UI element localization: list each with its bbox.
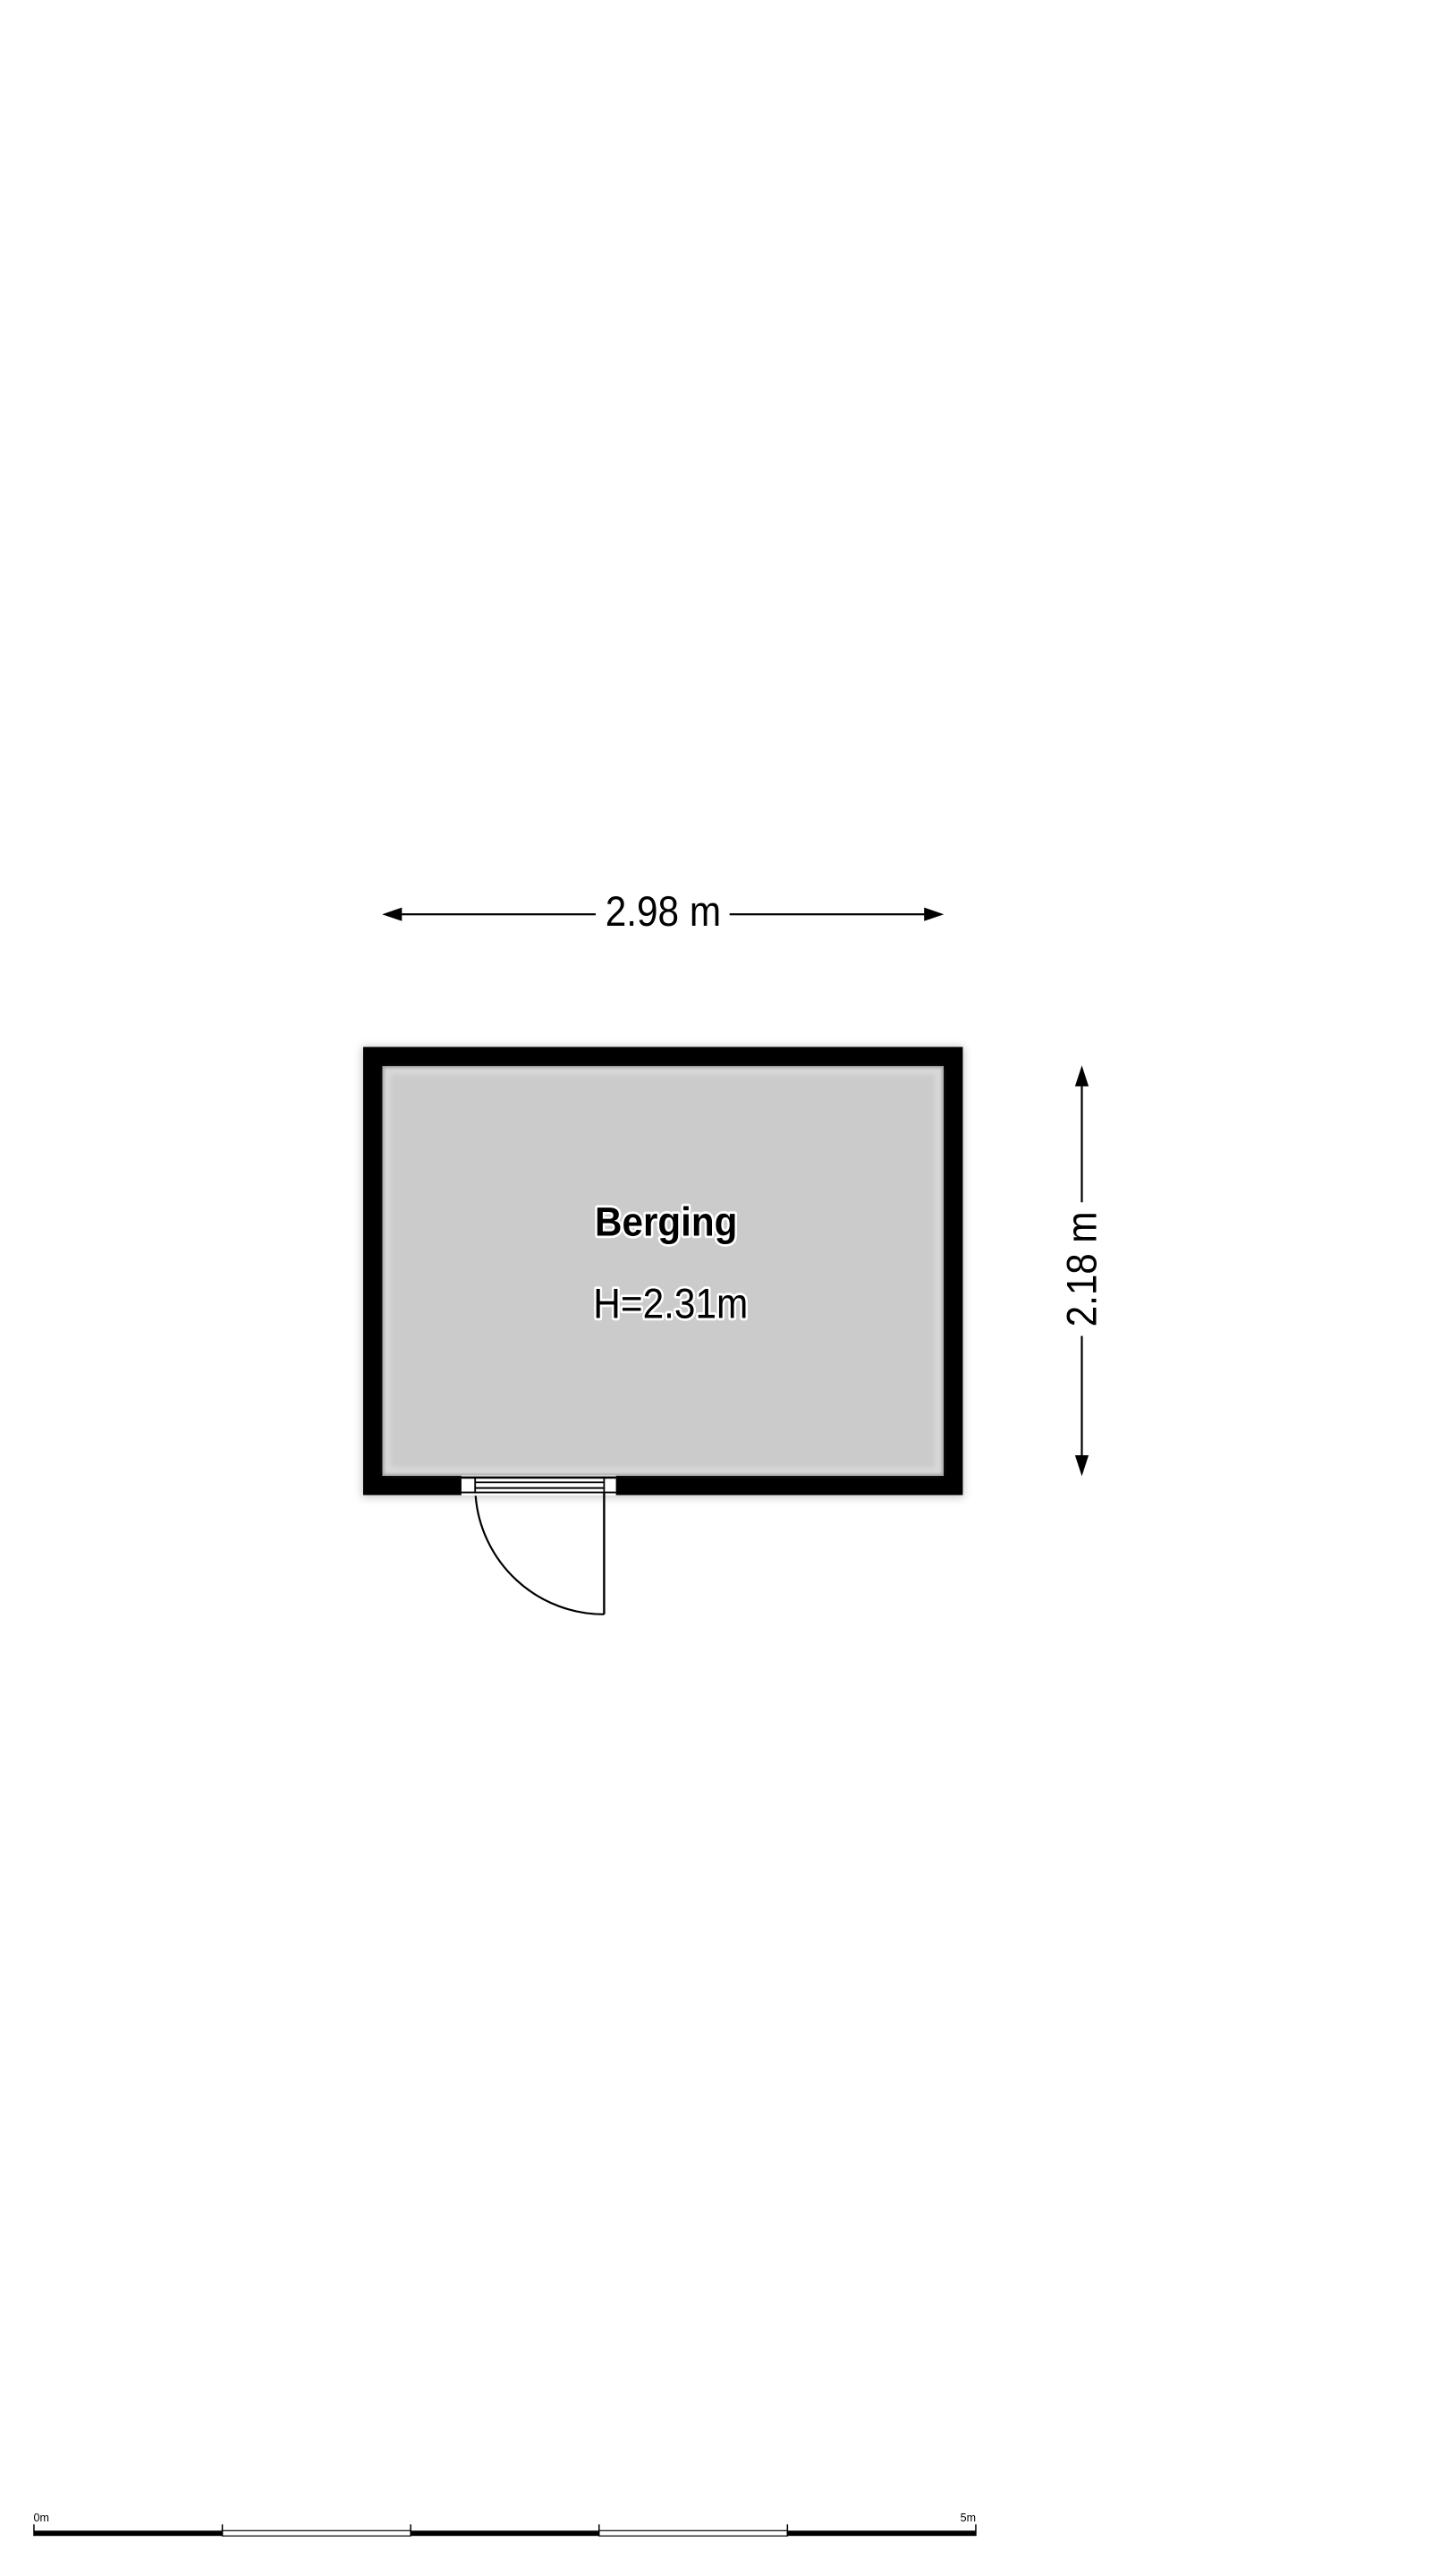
svg-text:Berging: Berging [595, 1199, 737, 1245]
svg-text:0m: 0m [34, 2512, 49, 2524]
svg-text:5m: 5m [961, 2512, 976, 2524]
svg-text:H=2.31m: H=2.31m [593, 1280, 748, 1327]
svg-text:2.18 m: 2.18 m [1059, 1211, 1106, 1326]
svg-text:2.98 m: 2.98 m [606, 889, 721, 935]
